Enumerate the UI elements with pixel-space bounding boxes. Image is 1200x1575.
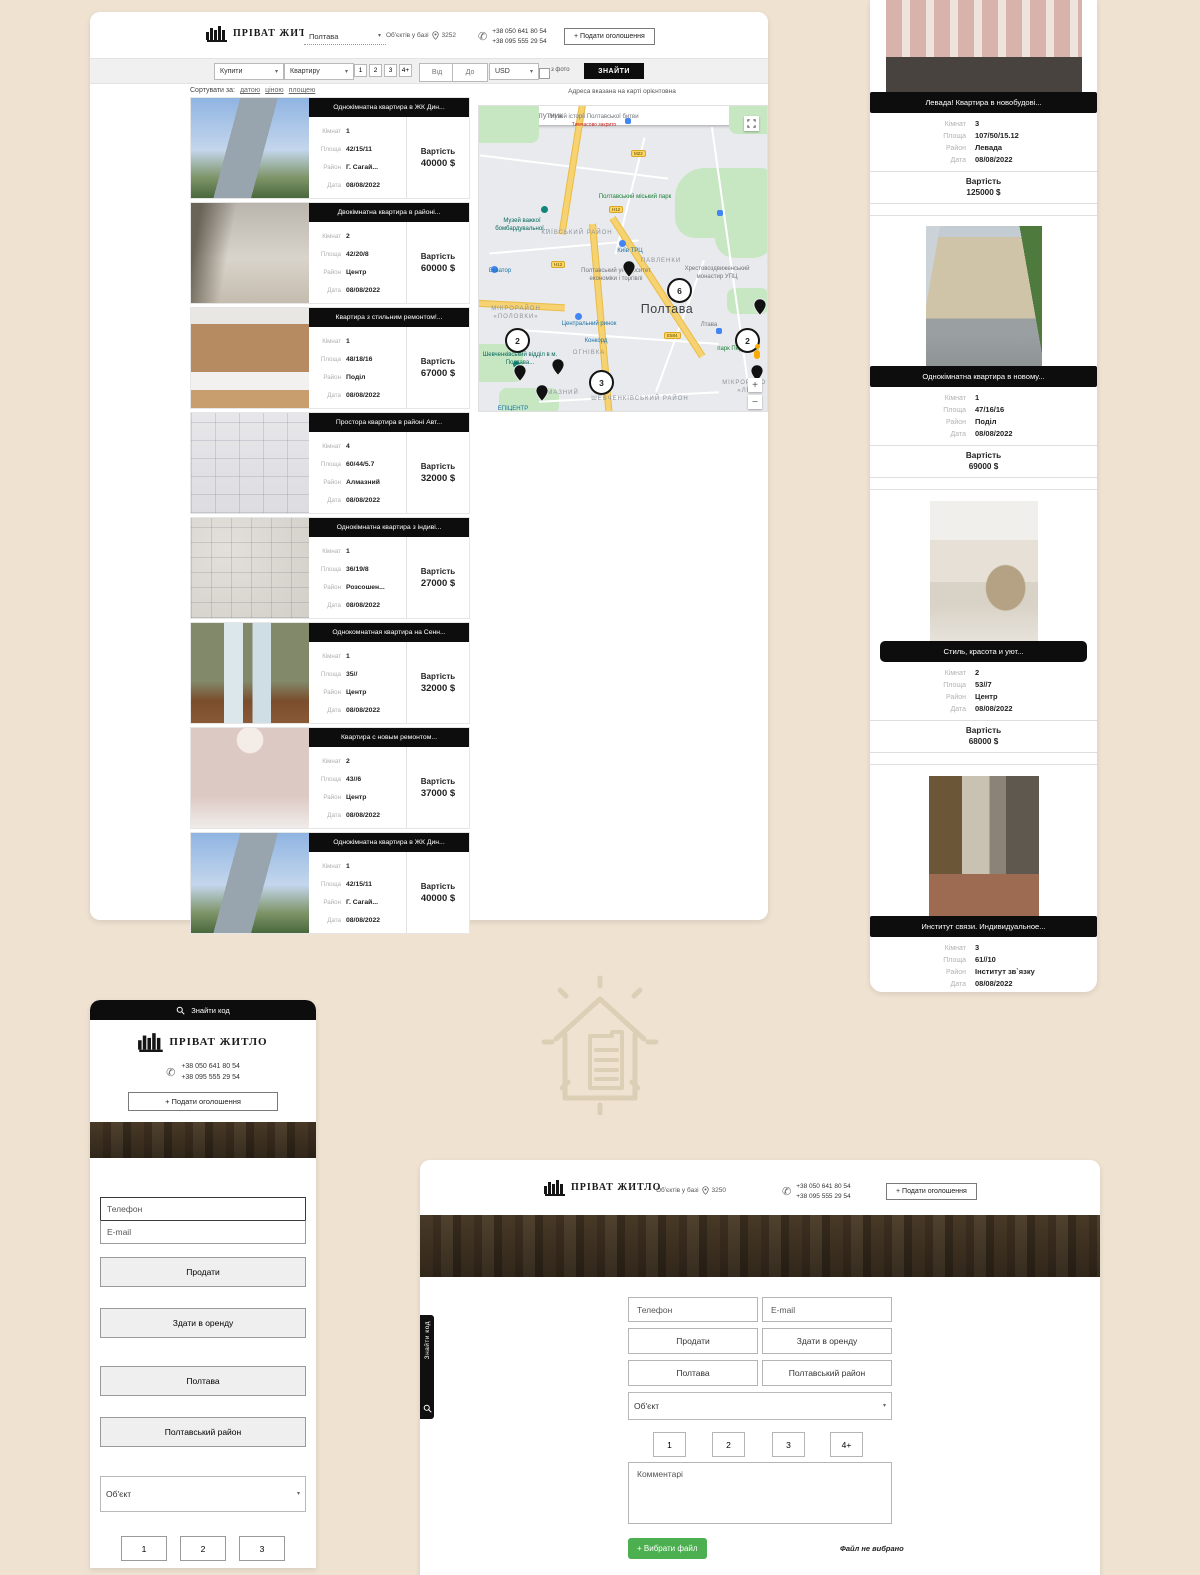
mobile-results-column: Левада! Квартира в новобудові... Кімнат3… — [870, 0, 1097, 992]
road-badge: Е584 — [664, 332, 681, 339]
listing-price: Вартість32000 $ — [406, 432, 469, 513]
map-pin[interactable] — [622, 260, 636, 278]
listing-title[interactable]: Однокімнатна квартира в ЖК Дин... — [309, 98, 469, 117]
map-note: Адреса вказана на карті орієнтовна — [478, 88, 766, 95]
listing-title[interactable]: Квартира с новым ремонтом... — [309, 728, 469, 747]
brand-name: ПРІВАТ ЖИТЛО — [571, 1182, 661, 1193]
rooms-1-button[interactable]: 1 — [354, 64, 367, 77]
sell-button[interactable]: Продати — [100, 1257, 306, 1287]
with-photo-label: з фото — [551, 67, 570, 73]
price-to-input[interactable] — [452, 63, 488, 82]
search-bar: Купити▾ Квартиру▾ 1 2 3 4+ USD▾ з фото З… — [90, 58, 768, 84]
listing-title[interactable]: Квартира з стильним ремонтом!... — [309, 308, 469, 327]
tablet-header: ПРІВАТ ЖИТЛО Об'єктів у базі 3250 ✆ +38 … — [420, 1160, 1100, 1215]
listing-card[interactable]: Однокімнатна квартира в ЖК Дин... Кімнат… — [190, 97, 470, 199]
map-label: ОГНІВКА — [561, 350, 617, 358]
currency-select[interactable]: USD▾ — [489, 63, 539, 80]
fullscreen-button[interactable] — [744, 116, 759, 131]
phone-number-1[interactable]: +38 050 641 80 54 — [181, 1062, 240, 1073]
sort-by-area-link[interactable]: площею — [289, 87, 316, 94]
mobile-view: Знайти код ПРІВАТ ЖИТЛО ✆ +38 050 641 80… — [90, 1000, 316, 1568]
brand-name: ПРІВАТ ЖИТЛО — [169, 1036, 267, 1048]
buildings-logo-icon — [206, 25, 228, 42]
map-poi-icon — [541, 206, 548, 213]
rooms-4plus-button[interactable]: 4+ — [399, 64, 412, 77]
rooms-buttons: 1 2 3 — [100, 1536, 306, 1561]
map-poi-icon — [717, 210, 723, 216]
price-from-input[interactable] — [419, 63, 455, 82]
search-icon — [423, 1404, 432, 1413]
buildings-logo-icon — [138, 1032, 164, 1052]
email-field[interactable] — [762, 1297, 892, 1322]
map-label: Київ ТРЦ — [607, 248, 653, 256]
house-watermark-icon — [538, 972, 662, 1120]
buildings-logo-icon — [544, 1179, 566, 1196]
listing-title[interactable]: Стиль, красота и уют... — [880, 641, 1087, 662]
listing-card[interactable]: Стиль, красота и уют... Кімнат2 Площа53/… — [870, 489, 1097, 753]
object-select[interactable]: Об'єкт▾ — [100, 1476, 306, 1512]
city-button[interactable]: Полтава — [100, 1366, 306, 1396]
phone-number-2[interactable]: +38 095 555 29 54 — [181, 1073, 240, 1084]
listing-card[interactable]: Однокімнатна квартира в новому... Кімнат… — [870, 215, 1097, 478]
map-pin[interactable] — [513, 364, 527, 382]
map-label: Екватор — [479, 268, 521, 276]
road-badge: М22 — [631, 150, 646, 157]
map-cluster[interactable]: 2 — [505, 328, 530, 353]
listing-card[interactable]: Квартира з стильним ремонтом!... Кімнат1… — [190, 307, 470, 409]
city-button[interactable]: Полтава — [628, 1360, 758, 1386]
chevron-down-icon: ▾ — [297, 1491, 300, 1497]
listing-price: Вартість69000 $ — [870, 445, 1097, 478]
listing-photo — [191, 308, 309, 408]
city-hero-image — [90, 1122, 316, 1158]
map-label: Центральний ринок — [557, 321, 621, 329]
chevron-down-icon: ▾ — [378, 33, 381, 39]
map-cluster[interactable]: 6 — [667, 278, 692, 303]
map-pin[interactable] — [535, 384, 549, 402]
mobile-form: Продати Здати в оренду Полтава Полтавськ… — [90, 1158, 316, 1568]
listing-title[interactable]: Двокімнатна квартира в районі... — [309, 203, 469, 222]
rooms-2-button[interactable]: 2 — [180, 1536, 226, 1561]
sell-button[interactable]: Продати — [628, 1328, 758, 1354]
tablet-view: ПРІВАТ ЖИТЛО Об'єктів у базі 3250 ✆ +38 … — [420, 1160, 1100, 1575]
listing-photo — [929, 776, 1039, 916]
listing-card[interactable]: Квартира с новым ремонтом... Кімнат2 Пло… — [190, 727, 470, 829]
chevron-down-icon: ▾ — [275, 69, 278, 75]
listing-price: Вартість125000 $ — [870, 171, 1097, 204]
post-ad-button[interactable]: + Подати оголошення — [128, 1092, 278, 1111]
sort-by-price-link[interactable]: ціною — [265, 87, 284, 94]
listing-card[interactable]: Простора квартира в районі Авт... Кімнат… — [190, 412, 470, 514]
listing-card[interactable]: Двокімнатна квартира в районі... Кімнат2… — [190, 202, 470, 304]
city-select[interactable]: Полтава▾ — [304, 28, 386, 45]
map-label: Музей історії Полтавської битви Тимчасов… — [549, 114, 639, 128]
chevron-down-icon: ▾ — [345, 69, 348, 75]
rooms-3-button[interactable]: 3 — [772, 1432, 805, 1457]
no-file-label: Файл не вибрано — [840, 1544, 904, 1553]
search-icon — [176, 1006, 185, 1015]
map-pin[interactable] — [753, 298, 767, 316]
chevron-down-icon: ▾ — [883, 1403, 886, 1409]
listing-title[interactable]: Однокомнатная квартира на Сенн... — [309, 623, 469, 642]
header-phones: ✆ +38 050 641 80 54 +38 095 555 29 54 — [478, 27, 547, 47]
listing-price: Вартість40000 $ — [406, 852, 469, 933]
map-poi-icon — [575, 313, 582, 320]
listing-title[interactable]: Простора квартира в районі Авт... — [309, 413, 469, 432]
rooms-1-button[interactable]: 1 — [121, 1536, 167, 1561]
phone-number-1[interactable]: +38 050 641 80 54 — [492, 27, 546, 37]
zoom-in-button[interactable]: + — [748, 378, 762, 392]
comments-textarea[interactable] — [628, 1462, 892, 1524]
listing-photo — [191, 203, 309, 303]
phone-field[interactable] — [628, 1297, 758, 1322]
road-badge: Н12 — [551, 261, 565, 268]
listing-results: Однокімнатна квартира в ЖК Дин... Кімнат… — [190, 97, 470, 937]
listing-price: Вартість27000 $ — [406, 537, 469, 618]
listing-photo — [191, 98, 309, 198]
choose-file-button[interactable]: + Вибрати файл — [628, 1538, 707, 1559]
listing-title[interactable]: Левада! Квартира в новобудові... — [870, 92, 1097, 113]
post-ad-button[interactable]: + Подати оголошення — [564, 28, 655, 45]
listing-photo — [191, 728, 309, 828]
rooms-3-button[interactable]: 3 — [239, 1536, 285, 1561]
location-pin-icon — [432, 31, 439, 40]
brand-logo[interactable]: ПРІВАТ ЖИТЛО — [90, 1032, 316, 1052]
zoom-out-button[interactable]: − — [748, 395, 762, 409]
rooms-3-button[interactable]: 3 — [384, 64, 397, 77]
mobile-phones: ✆ +38 050 641 80 54 +38 095 555 29 54 — [90, 1062, 316, 1083]
listing-title[interactable]: Институт связи. Индивидуальное... — [870, 916, 1097, 937]
brand-logo[interactable]: ПРІВАТ ЖИТЛО — [544, 1179, 661, 1196]
find-code-side-tab[interactable]: Знайти код — [420, 1315, 434, 1419]
map-pin[interactable] — [551, 358, 565, 376]
chevron-down-icon: ▾ — [530, 69, 533, 75]
map-park-shape — [478, 105, 539, 143]
phone-number-2[interactable]: +38 095 555 29 54 — [796, 1192, 850, 1202]
phone-icon: ✆ — [166, 1066, 175, 1079]
phone-icon: ✆ — [782, 1185, 791, 1198]
objects-counter: Об'єктів у базі 3250 — [656, 1186, 726, 1195]
listing-title[interactable]: Однокімнатна квартира в ЖК Дин... — [309, 833, 469, 852]
phone-number-2[interactable]: +38 095 555 29 54 — [492, 37, 546, 47]
estate-type-select[interactable]: Квартиру▾ — [284, 63, 354, 80]
email-field[interactable] — [100, 1220, 306, 1244]
search-submit-button[interactable]: ЗНАЙТИ — [584, 63, 644, 79]
map-label: Полтавський університет економіки і торг… — [581, 268, 651, 283]
map-label: ПАВЛЕНКИ — [631, 258, 691, 266]
desktop-window: ПРІВАТ ЖИТЛО Полтава▾ Об'єктів у базі 32… — [90, 12, 768, 920]
listing-title[interactable]: Однокімнатна квартира з індиві... — [309, 518, 469, 537]
district-button[interactable]: Полтавський район — [100, 1417, 306, 1447]
listing-price: Вартість37000 $ — [406, 747, 469, 828]
listing-card[interactable]: Однокімнатна квартира в ЖК Дин... Кімнат… — [190, 832, 470, 934]
map-city-label: Полтава — [619, 302, 715, 318]
listing-price: Вартість40000 $ — [406, 117, 469, 198]
deal-type-select[interactable]: Купити▾ — [214, 63, 284, 80]
pegman-icon[interactable] — [752, 344, 762, 360]
object-select[interactable]: Об'єкт▾ — [628, 1392, 892, 1420]
rooms-2-button[interactable]: 2 — [369, 64, 382, 77]
listing-photo — [191, 623, 309, 723]
listing-title[interactable]: Однокімнатна квартира в новому... — [870, 366, 1097, 387]
map-label: Лтава — [689, 322, 729, 330]
location-pin-icon — [702, 1186, 709, 1195]
listing-price: Вартість68000 $ — [870, 720, 1097, 753]
with-photo-checkbox[interactable] — [539, 66, 550, 84]
listing-card[interactable]: Левада! Квартира в новобудові... Кімнат3… — [870, 0, 1097, 204]
rooms-filter: 1 2 3 4+ — [354, 64, 412, 77]
listing-card[interactable]: Однокімнатна квартира з індиві... Кімнат… — [190, 517, 470, 619]
map-label: ШЕВЧЕНКІВСЬКИЙ РАЙОН — [585, 396, 695, 404]
sort-by-date-link[interactable]: датою — [240, 87, 260, 94]
rent-button[interactable]: Здати в оренду — [100, 1308, 306, 1338]
map-label: Конкорд — [571, 338, 621, 346]
rooms-4plus-button[interactable]: 4+ — [830, 1432, 863, 1457]
map-label: Хрестовоздвиженський монастир УПЦ — [675, 266, 759, 281]
map-cluster[interactable]: 3 — [589, 370, 614, 395]
rent-button[interactable]: Здати в оренду — [762, 1328, 892, 1354]
phone-field[interactable] — [100, 1197, 306, 1221]
listing-photo — [191, 833, 309, 933]
district-button[interactable]: Полтавський район — [762, 1360, 892, 1386]
listing-photo — [886, 0, 1082, 92]
sort-row: Сортувати за: датою ціною площею — [190, 87, 315, 94]
listing-price: Вартість32000 $ — [406, 642, 469, 723]
rooms-2-button[interactable]: 2 — [712, 1432, 745, 1457]
listing-photo — [926, 226, 1042, 366]
map-label: АЛМАЗНИЙ — [523, 390, 593, 398]
rooms-1-button[interactable]: 1 — [653, 1432, 686, 1457]
city-hero-image — [420, 1215, 1100, 1277]
objects-counter: Об'єктів у базі 3252 — [386, 31, 456, 40]
listing-photo — [191, 413, 309, 513]
listing-card[interactable]: Институт связи. Индивидуальное... Кімнат… — [870, 764, 1097, 992]
header-phones: ✆ +38 050 641 80 54 +38 095 555 29 54 — [782, 1182, 851, 1202]
post-ad-button[interactable]: + Подати оголошення — [886, 1183, 977, 1200]
listing-photo — [191, 518, 309, 618]
map-label: КИЇВСЬКИЙ РАЙОН — [537, 230, 617, 238]
listing-price: Вартість67000 $ — [406, 327, 469, 408]
phone-icon: ✆ — [478, 30, 487, 43]
phone-number-1[interactable]: +38 050 641 80 54 — [796, 1182, 850, 1192]
map[interactable]: М22 Н12 Н12 Е584 Музей історії Полтавськ… — [478, 105, 768, 412]
map-label: ЕПІЦЕНТР — [483, 406, 543, 412]
map-poi-icon — [619, 240, 626, 247]
find-code-bar[interactable]: Знайти код — [90, 1000, 316, 1020]
listing-card[interactable]: Однокомнатная квартира на Сенн... Кімнат… — [190, 622, 470, 724]
road-badge: Н12 — [609, 206, 623, 213]
listing-photo — [930, 501, 1038, 641]
map-label: Полтавський міський парк — [597, 194, 673, 202]
map-label: МІКРОРАЙОН «ПОЛОВКИ» — [481, 306, 551, 321]
listing-price: Вартість60000 $ — [406, 222, 469, 303]
